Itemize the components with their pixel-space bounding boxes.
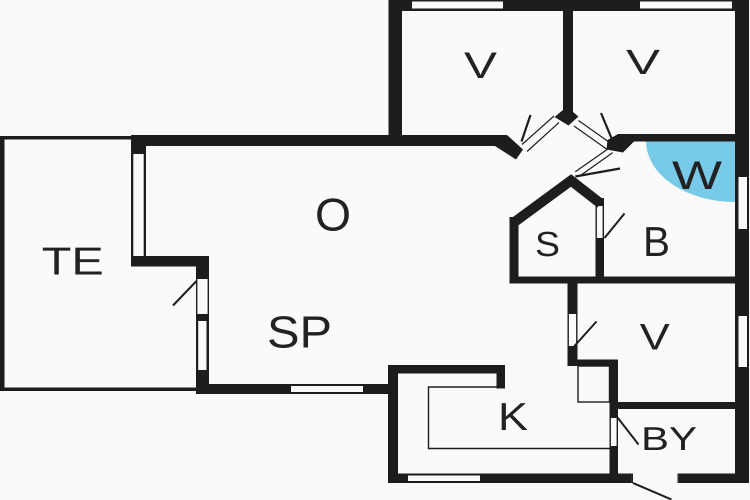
svg-text:K: K [498, 396, 528, 439]
svg-text:B: B [643, 218, 670, 265]
svg-text:S: S [535, 225, 560, 264]
svg-text:BY: BY [641, 420, 697, 457]
svg-text:TE: TE [42, 241, 104, 284]
svg-text:SP: SP [267, 307, 332, 358]
svg-text:W: W [672, 154, 722, 198]
svg-text:V: V [464, 45, 497, 86]
svg-text:V: V [626, 43, 661, 82]
svg-text:V: V [640, 317, 670, 358]
svg-text:O: O [315, 189, 351, 241]
